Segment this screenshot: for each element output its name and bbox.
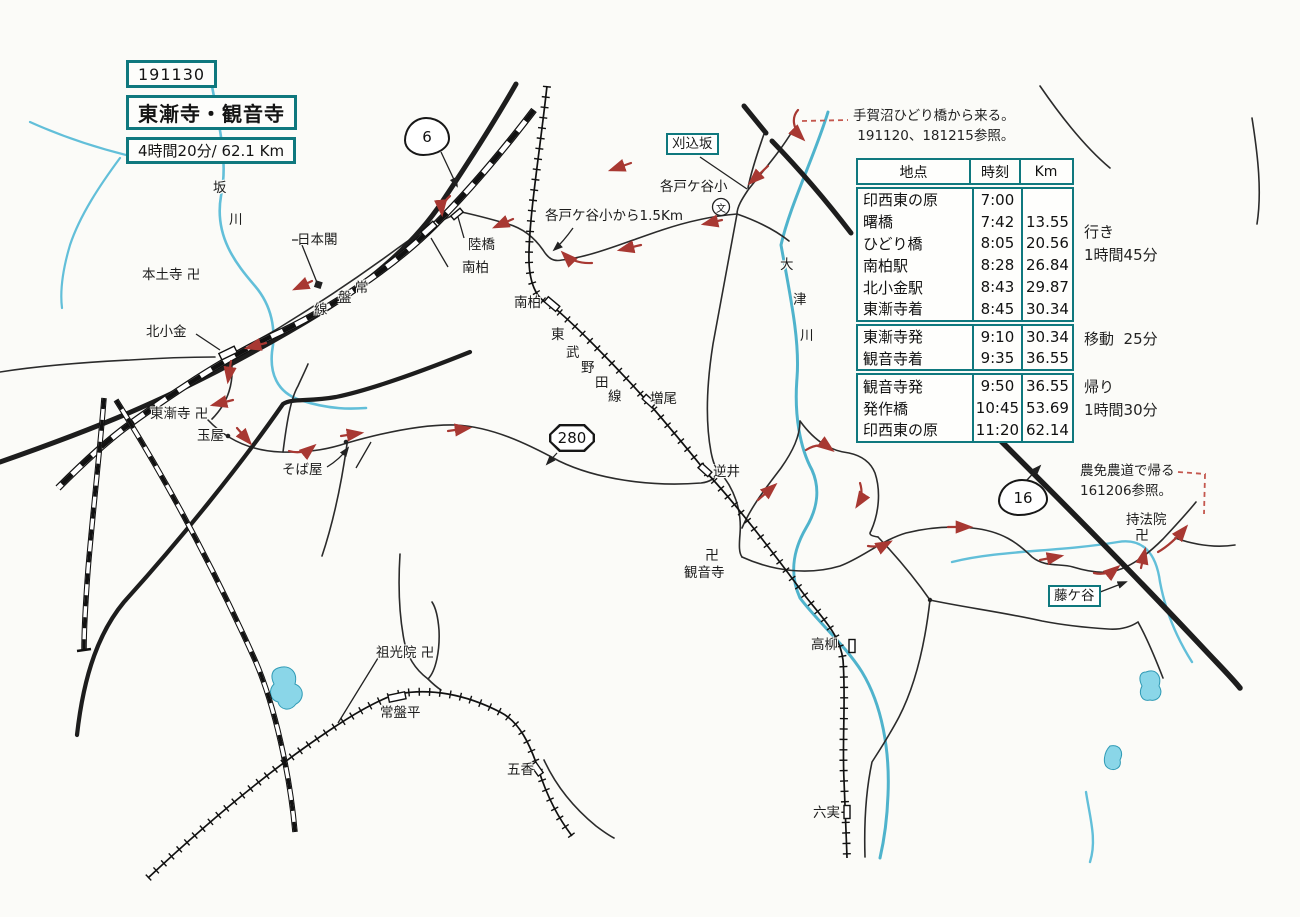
route-shield-16: 16 <box>998 479 1048 516</box>
leader-minamikashiwa <box>431 238 448 267</box>
route-arrow-entry <box>794 110 803 139</box>
timetable-header-cell: 時刻 <box>969 160 1019 183</box>
timetable-cell: 62.14 <box>1021 419 1072 441</box>
timetable-cell: 印西東の原 <box>858 419 972 441</box>
leader-sobaya-2 <box>356 442 371 468</box>
timetable-cell: 南柏駅 <box>858 254 972 276</box>
note-start: 手賀沼ひどり橋から来る。 191120、181215参照。 <box>853 106 1015 146</box>
road-goko-se <box>544 760 614 838</box>
label-kannonji-manji: 卍 <box>705 549 719 564</box>
label-masuo: 増尾 <box>650 392 677 407</box>
timetable-cell: 9:50 <box>972 375 1021 397</box>
pond-right-1 <box>1140 671 1161 700</box>
road-tamaya-north <box>283 364 308 452</box>
river-stream-corner <box>1086 792 1093 862</box>
timetable-row: 東漸寺着8:4530.34 <box>858 298 1072 320</box>
sobaya-dot <box>344 440 349 445</box>
road-kakudo-south <box>707 214 737 471</box>
timetable-cell: 印西東の原 <box>858 189 972 211</box>
label-tamaya: 玉屋 <box>197 429 224 444</box>
station-minamikashiwa-tobu <box>544 297 560 312</box>
timetable-section-1: 印西東の原7:00曙橋7:4213.55ひどり橋8:0520.56南柏駅8:28… <box>856 187 1074 322</box>
timetable-row: 印西東の原7:00 <box>858 189 1072 211</box>
label-otsugawa-2: 津 <box>793 293 807 308</box>
timetable-section-2: 東漸寺発9:1030.34観音寺着9:3536.55 <box>856 324 1074 372</box>
leader-arrow-route6 <box>441 152 457 186</box>
road-junction-east <box>930 600 1163 678</box>
timetable-cell: 9:35 <box>972 348 1021 370</box>
label-jobansen-2: 盤 <box>338 291 352 306</box>
label-goko: 五香 <box>507 763 534 778</box>
timetable-row: 曙橋7:4213.55 <box>858 211 1072 233</box>
timetable-row: 観音寺着9:3536.55 <box>858 348 1072 370</box>
label-tobunodasen-4: 田 <box>595 376 609 391</box>
page-title: 東漸寺・観音寺 <box>126 95 297 130</box>
timetable: 地点時刻Km印西東の原7:00曙橋7:4213.55ひどり橋8:0520.56南… <box>856 158 1074 445</box>
label-tosenji: 東漸寺 卍 <box>150 407 208 422</box>
label-kitakogane: 北小金 <box>146 325 187 340</box>
label-kannonji: 観音寺 <box>684 566 725 581</box>
pond-left <box>271 667 303 709</box>
label-hondoji: 本土寺 卍 <box>142 268 200 283</box>
station-sakasai <box>698 463 712 476</box>
timetable-cell: 7:42 <box>972 211 1021 233</box>
station-takayanagi <box>849 640 855 653</box>
timetable-cell: 9:10 <box>972 326 1021 348</box>
timetable-header: 地点時刻Km <box>856 158 1074 185</box>
label-rikkyo: 陸橋 <box>468 238 495 253</box>
timetable-row: 北小金駅8:4329.87 <box>858 276 1072 298</box>
timetable-cell: ひどり橋 <box>858 233 972 255</box>
duration-box: 4時間20分/ 62.1 Km <box>126 137 296 164</box>
poi-symbols <box>226 199 933 603</box>
road-kakudo-east <box>737 214 789 241</box>
road-topright-thick-a <box>744 106 766 133</box>
timetable-header-cell: 地点 <box>858 160 969 183</box>
timetable-section-3: 観音寺発9:5036.55発作橋10:4553.69印西東の原11:2062.1… <box>856 373 1074 442</box>
road-topright-2 <box>1252 118 1259 224</box>
label-sakagawa-2: 川 <box>229 213 243 228</box>
pond-right-2 <box>1104 746 1121 770</box>
railway-tobu-noda-line <box>529 86 847 858</box>
timetable-cell: 8:28 <box>972 254 1021 276</box>
timetable-cell: 発作橋 <box>858 397 972 419</box>
label-tobunodasen-5: 線 <box>608 390 622 405</box>
rail-terminal-tick <box>77 649 91 651</box>
leader-kitakogane <box>196 334 220 350</box>
leader-rikkyo <box>458 217 464 238</box>
timetable-cell: 10:45 <box>972 397 1021 419</box>
timetable-cell: 8:45 <box>972 298 1021 320</box>
leader-arrow-1p5km <box>554 228 573 250</box>
railway-shinkeisei-south <box>148 692 572 878</box>
road-junction-south <box>865 600 930 857</box>
timetable-cell <box>1021 189 1072 211</box>
timetable-cell: 26.84 <box>1021 254 1072 276</box>
route-shield-6: 6 <box>404 117 450 156</box>
label-nihonkaku: 日本閣 <box>297 233 338 248</box>
label-fujigaya: 藤ケ谷 <box>1048 585 1101 607</box>
timetable-cell: 11:20 <box>972 419 1021 441</box>
timetable-cell: 北小金駅 <box>858 276 972 298</box>
label-karikomizaka: 刈込坂 <box>666 133 719 155</box>
timetable-cell: 曙橋 <box>858 211 972 233</box>
timetable-cell: 東漸寺発 <box>858 326 972 348</box>
label-otsugawa-1: 大 <box>780 258 794 273</box>
hand-drawn-cycling-map: 191130 東漸寺・観音寺 4時間20分/ 62.1 Km 地点時刻Km印西東… <box>0 0 1300 917</box>
timetable-cell: 30.34 <box>1021 298 1072 320</box>
timetable-row: 発作橋10:4553.69 <box>858 397 1072 419</box>
label-tokiwadaira: 常盤平 <box>380 706 421 721</box>
label-kakudogaya-school: 各戸ケ谷小 <box>660 180 728 195</box>
timetable-row: ひどり橋8:0520.56 <box>858 233 1072 255</box>
station-tokiwadaira <box>388 692 406 702</box>
note-return: 農免農道で帰る161206参照。 <box>1080 461 1175 501</box>
timetable-row: 観音寺発9:5036.55 <box>858 375 1072 397</box>
river-stream-topleft-2 <box>61 158 120 308</box>
timetable-cell: 8:05 <box>972 233 1021 255</box>
label-sokoin: 祖光院 卍 <box>376 646 434 661</box>
timetable-cell: 36.55 <box>1021 348 1072 370</box>
timetable-cell: 8:43 <box>972 276 1021 298</box>
timetable-cell: 東漸寺着 <box>858 298 972 320</box>
label-tobunodasen-1: 東 <box>551 328 565 343</box>
timetable-cell: 7:00 <box>972 189 1021 211</box>
timetable-cell: 30.34 <box>1021 326 1072 348</box>
label-school-symbol: 文 <box>716 202 726 217</box>
timetable-cell: 13.55 <box>1021 211 1072 233</box>
label-mutsumi: 六実 <box>813 806 840 821</box>
road-soba-south <box>322 444 347 556</box>
label-minamikashiwa-jr: 南柏 <box>462 261 489 276</box>
junction-dot <box>928 598 932 602</box>
route-shield-280: 280 <box>549 424 595 452</box>
timetable-cell: 20.56 <box>1021 233 1072 255</box>
label-tobunodasen-3: 野 <box>581 361 595 376</box>
label-sobaya: そば屋 <box>282 463 323 478</box>
road-north-route <box>461 130 793 261</box>
label-takayanagi: 高柳 <box>811 638 838 653</box>
label-sakasai: 逆井 <box>713 465 740 480</box>
label-jobansen-1: 常 <box>355 281 369 296</box>
timetable-cell: 53.69 <box>1021 397 1072 419</box>
road-sakasai-north <box>742 421 800 528</box>
timetable-row: 南柏駅8:2826.84 <box>858 254 1072 276</box>
railway-shinkeisei <box>77 398 295 832</box>
station-mutsumi <box>844 806 850 819</box>
timetable-cell: 36.55 <box>1021 375 1072 397</box>
label-otsugawa-3: 川 <box>800 329 814 344</box>
road-west <box>0 357 215 372</box>
label-jobansen-3: 線 <box>314 303 328 318</box>
timetable-cell: 観音寺発 <box>858 375 972 397</box>
timetable-header-cell: Km <box>1019 160 1071 183</box>
timetable-cell: 29.87 <box>1021 276 1072 298</box>
timetable-cell: 観音寺着 <box>858 348 972 370</box>
label-tobunodasen-2: 武 <box>566 346 580 361</box>
label-minamikashiwa-tobu: 南柏 <box>514 296 541 311</box>
road-topright-1 <box>1040 86 1110 168</box>
tamaya-dot <box>226 434 231 439</box>
leg-return: 帰り1時間30分 <box>1084 376 1158 422</box>
road-jihoin-east <box>1175 538 1235 546</box>
road-junction-west <box>878 537 930 600</box>
date-box: 191130 <box>126 60 217 88</box>
label-sakagawa-1: 坂 <box>213 181 227 196</box>
timetable-row: 印西東の原11:2062.14 <box>858 419 1072 441</box>
label-jihoin-manji: 卍 <box>1135 529 1149 544</box>
leg-transfer: 移動 25分 <box>1084 328 1158 351</box>
timetable-row: 東漸寺発9:1030.34 <box>858 326 1072 348</box>
leg-going: 行き1時間45分 <box>1084 221 1158 267</box>
label-jihoin: 持法院 <box>1126 513 1167 528</box>
label-kakudogaya-dist: 各戸ケ谷小から1.5Km <box>545 209 683 224</box>
